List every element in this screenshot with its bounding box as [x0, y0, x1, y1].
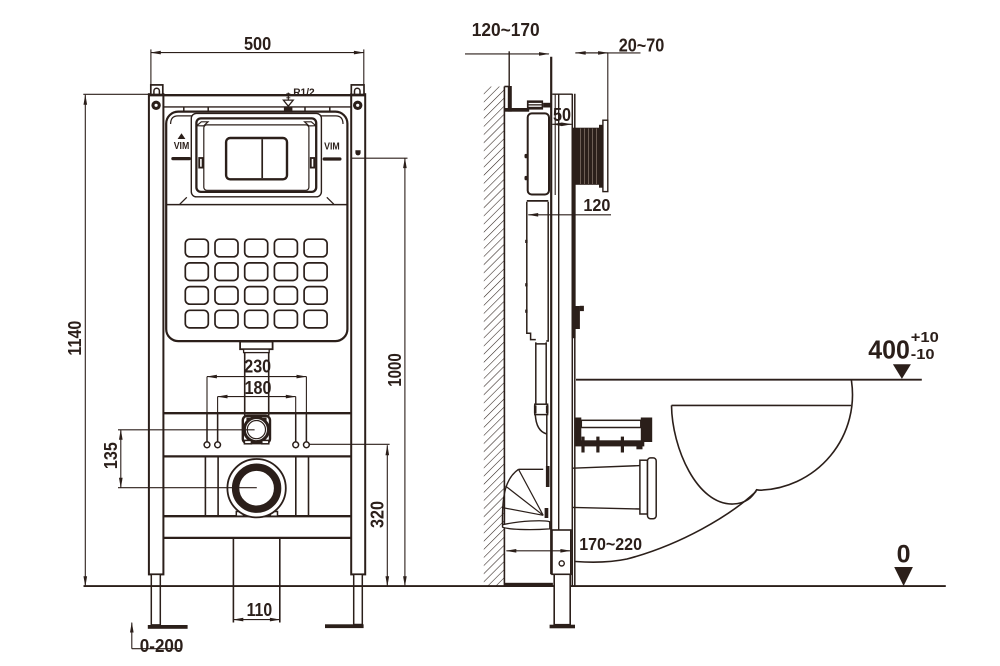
svg-text:500: 500: [244, 34, 271, 54]
svg-text:50: 50: [553, 105, 571, 125]
svg-text:+10: +10: [911, 329, 939, 346]
svg-text:20~70: 20~70: [619, 35, 665, 55]
svg-text:0-200: 0-200: [140, 636, 184, 656]
svg-text:320: 320: [367, 501, 387, 528]
svg-text:170~220: 170~220: [579, 534, 642, 554]
svg-text:400: 400: [868, 334, 910, 364]
svg-text:120~170: 120~170: [472, 20, 540, 40]
svg-text:VIM: VIM: [174, 141, 190, 152]
svg-text:135: 135: [101, 442, 121, 469]
svg-text:-10: -10: [911, 346, 935, 363]
svg-text:180: 180: [245, 378, 272, 398]
svg-text:1000: 1000: [385, 353, 405, 387]
svg-text:120: 120: [583, 195, 610, 215]
svg-text:230: 230: [244, 357, 271, 377]
svg-text:0: 0: [897, 541, 911, 569]
svg-text:1140: 1140: [65, 321, 85, 356]
svg-text:110: 110: [247, 600, 273, 620]
svg-text:R1/2: R1/2: [293, 87, 315, 98]
svg-text:VIM: VIM: [324, 141, 340, 152]
